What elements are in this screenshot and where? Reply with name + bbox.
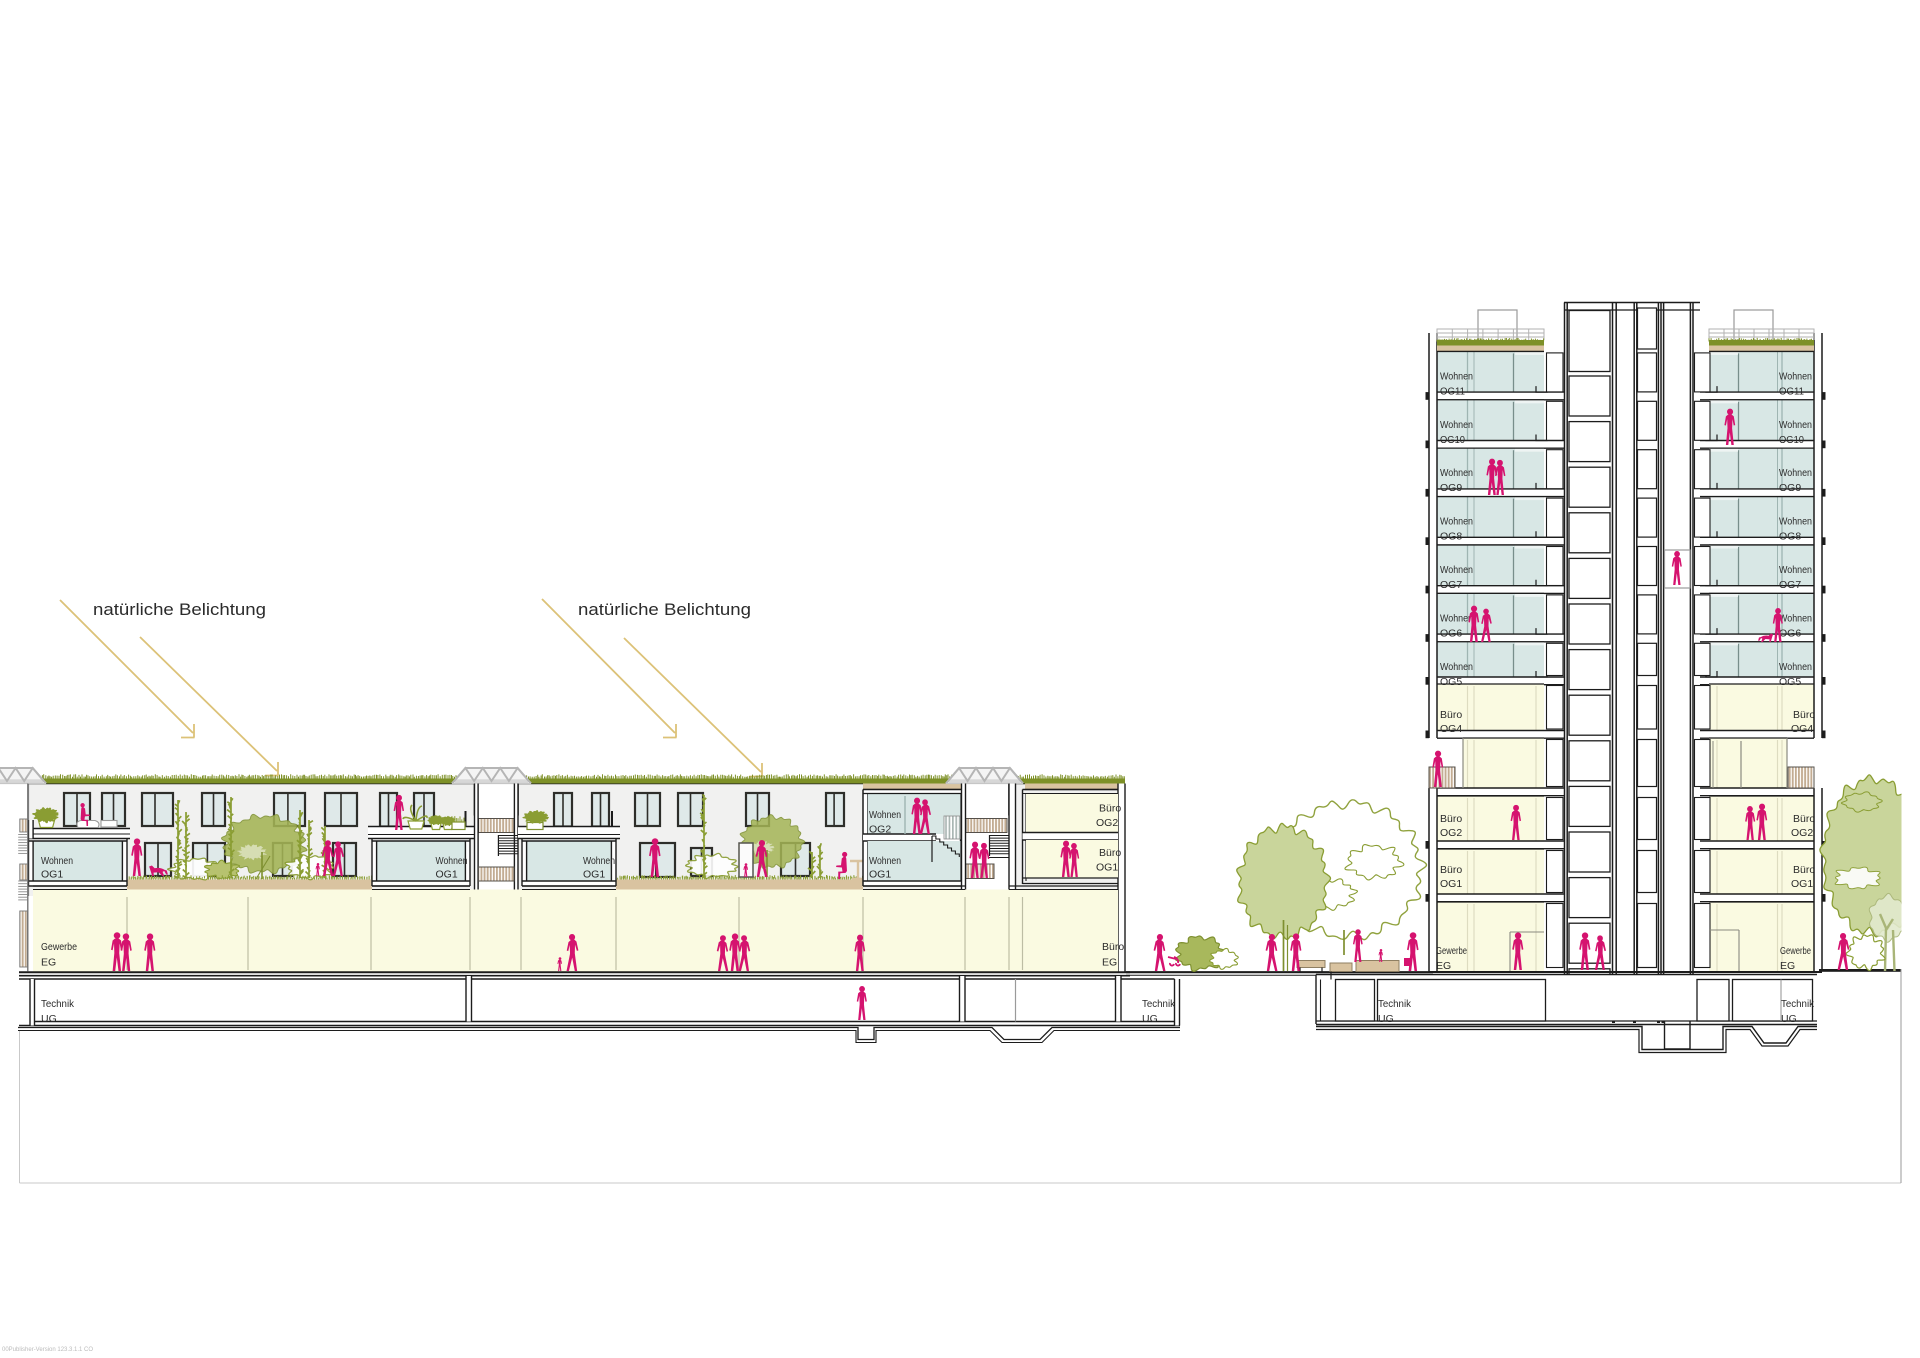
svg-text:Wohnen: Wohnen (1440, 661, 1473, 673)
svg-text:OG9: OG9 (1440, 482, 1462, 494)
svg-text:OG1: OG1 (1440, 878, 1462, 890)
svg-text:OG6: OG6 (1779, 627, 1801, 639)
svg-text:Wohnen: Wohnen (869, 809, 901, 821)
svg-text:Wohnen: Wohnen (41, 855, 73, 867)
svg-text:UG: UG (1781, 1013, 1797, 1025)
svg-text:OG1: OG1 (1096, 862, 1118, 874)
svg-text:Gewerbe: Gewerbe (41, 941, 77, 953)
svg-text:OG4: OG4 (1440, 723, 1462, 735)
svg-text:Wohnen: Wohnen (1440, 370, 1473, 382)
svg-text:EG: EG (41, 957, 56, 969)
svg-text:Wohnen: Wohnen (1440, 516, 1473, 528)
svg-text:OG10: OG10 (1779, 434, 1804, 446)
svg-text:Wohnen: Wohnen (1779, 661, 1812, 673)
svg-text:OG4: OG4 (1791, 723, 1813, 735)
svg-text:Wohnen: Wohnen (1440, 612, 1473, 624)
svg-text:Gewerbe: Gewerbe (1780, 945, 1811, 957)
svg-text:natürliche Belichtung: natürliche Belichtung (93, 600, 266, 619)
svg-text:Wohnen: Wohnen (1779, 370, 1812, 382)
svg-text:UG: UG (41, 1013, 57, 1025)
svg-text:EG: EG (1436, 960, 1451, 972)
svg-text:OG1: OG1 (583, 869, 605, 881)
svg-text:Büro: Büro (1102, 941, 1124, 953)
svg-text:EG: EG (1102, 957, 1117, 969)
svg-text:Wohnen: Wohnen (583, 855, 615, 867)
svg-text:OG11: OG11 (1779, 385, 1804, 397)
svg-text:Gewerbe: Gewerbe (1436, 945, 1467, 957)
svg-text:OG2: OG2 (1791, 827, 1813, 839)
svg-text:Wohnen: Wohnen (869, 855, 901, 867)
svg-text:EG: EG (1780, 960, 1795, 972)
svg-text:Wohnen: Wohnen (1779, 467, 1812, 479)
svg-text:Büro: Büro (1099, 803, 1121, 815)
svg-text:Technik: Technik (1781, 998, 1815, 1010)
svg-text:Büro: Büro (1440, 813, 1462, 825)
svg-text:Büro: Büro (1440, 864, 1462, 876)
svg-text:Wohnen: Wohnen (1779, 419, 1812, 431)
svg-text:OG2: OG2 (869, 824, 891, 836)
svg-text:OG10: OG10 (1440, 434, 1465, 446)
svg-text:Wohnen: Wohnen (1779, 564, 1812, 576)
svg-text:00Publisher-Version 123.3.1.1: 00Publisher-Version 123.3.1.1 CO (2, 1347, 93, 1353)
svg-text:Technik: Technik (1378, 998, 1412, 1010)
svg-text:Wohnen: Wohnen (1779, 516, 1812, 528)
svg-text:OG7: OG7 (1440, 579, 1462, 591)
svg-text:OG2: OG2 (1096, 817, 1118, 829)
svg-text:Technik: Technik (41, 998, 75, 1010)
svg-text:Wohnen: Wohnen (436, 855, 468, 867)
svg-text:Wohnen: Wohnen (1440, 419, 1473, 431)
svg-text:Wohnen: Wohnen (1779, 612, 1812, 624)
svg-text:Büro: Büro (1793, 864, 1815, 876)
svg-text:Büro: Büro (1440, 709, 1462, 721)
svg-text:Wohnen: Wohnen (1440, 564, 1473, 576)
svg-text:Büro: Büro (1793, 813, 1815, 825)
svg-text:OG8: OG8 (1440, 531, 1462, 543)
svg-text:OG6: OG6 (1440, 627, 1462, 639)
svg-text:OG7: OG7 (1779, 579, 1801, 591)
svg-text:OG8: OG8 (1779, 531, 1801, 543)
svg-text:natürliche Belichtung: natürliche Belichtung (578, 600, 751, 619)
svg-text:OG1: OG1 (1791, 878, 1813, 890)
svg-text:OG5: OG5 (1779, 676, 1801, 688)
svg-text:OG1: OG1 (869, 869, 891, 881)
svg-text:OG1: OG1 (41, 869, 63, 881)
svg-text:UG: UG (1142, 1013, 1158, 1025)
svg-text:Büro: Büro (1099, 847, 1121, 859)
svg-text:UG: UG (1378, 1013, 1394, 1025)
svg-text:OG1: OG1 (436, 869, 458, 881)
svg-text:Technik: Technik (1142, 998, 1176, 1010)
svg-text:Büro: Büro (1793, 709, 1815, 721)
svg-text:OG11: OG11 (1440, 385, 1465, 397)
svg-text:OG5: OG5 (1440, 676, 1462, 688)
svg-text:Wohnen: Wohnen (1440, 467, 1473, 479)
svg-text:OG9: OG9 (1779, 482, 1801, 494)
svg-text:OG2: OG2 (1440, 827, 1462, 839)
